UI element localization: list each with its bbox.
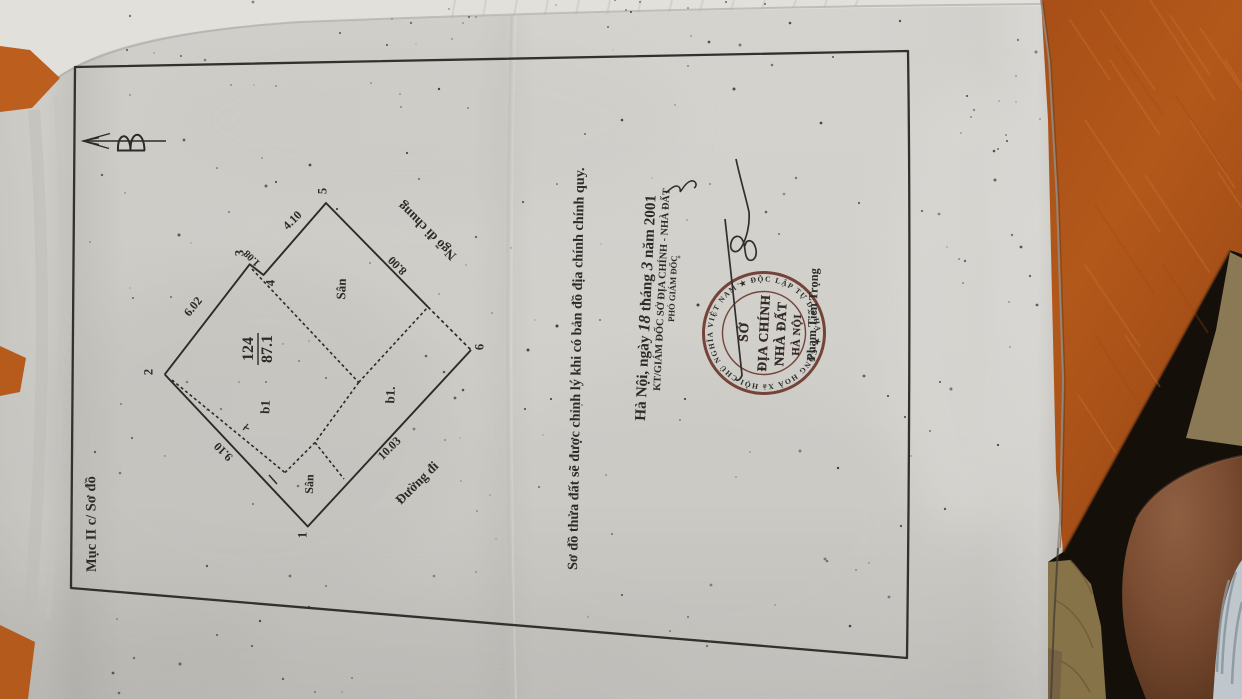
- svg-text:b1: b1: [257, 400, 272, 414]
- svg-text:87.1: 87.1: [259, 335, 276, 363]
- svg-text:1: 1: [295, 532, 309, 538]
- svg-text:5: 5: [315, 188, 329, 194]
- svg-text:Sân: Sân: [302, 474, 317, 494]
- svg-text:Mục II c/ Sơ đồ: Mục II c/ Sơ đồ: [83, 476, 100, 572]
- svg-text:124: 124: [240, 337, 257, 361]
- svg-text:6: 6: [472, 344, 486, 350]
- svg-text:b1.: b1.: [382, 386, 398, 403]
- svg-text:Sân: Sân: [333, 278, 349, 300]
- svg-text:2: 2: [141, 369, 155, 375]
- svg-text:4: 4: [263, 279, 277, 286]
